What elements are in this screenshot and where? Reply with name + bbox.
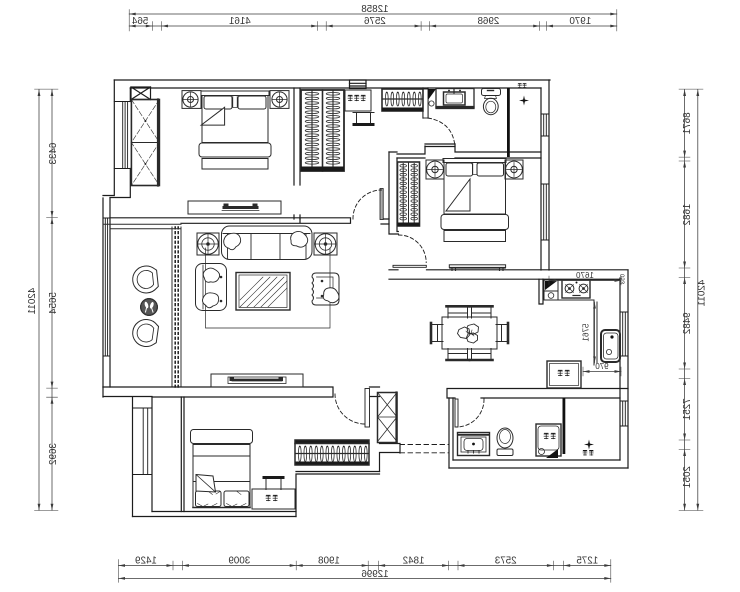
- svg-text:564: 564: [131, 16, 148, 27]
- svg-text:9482: 9482: [682, 312, 693, 334]
- svg-text:3692: 3692: [48, 443, 59, 465]
- svg-text:1970: 1970: [569, 16, 591, 27]
- svg-text:5761: 5761: [582, 324, 591, 342]
- svg-text:1842: 1842: [403, 555, 425, 566]
- svg-text:12996: 12996: [361, 569, 389, 580]
- svg-text:1682: 1682: [682, 204, 693, 226]
- svg-text:970: 970: [595, 362, 609, 371]
- svg-text:2576: 2576: [363, 16, 385, 27]
- svg-text:5654: 5654: [48, 292, 59, 314]
- svg-text:3009: 3009: [228, 555, 250, 566]
- svg-text:42011: 42011: [696, 280, 707, 307]
- svg-text:1670: 1670: [576, 271, 594, 280]
- svg-text:6433: 6433: [48, 143, 59, 165]
- svg-text:42011: 42011: [27, 288, 38, 315]
- svg-text:8671: 8671: [682, 112, 693, 134]
- svg-text:1275: 1275: [576, 555, 598, 566]
- svg-text:2968: 2968: [477, 16, 499, 27]
- svg-text:2051: 2051: [682, 466, 693, 488]
- svg-text:1429: 1429: [135, 555, 157, 566]
- svg-text:7251: 7251: [682, 398, 693, 420]
- svg-text:053: 053: [621, 274, 627, 285]
- svg-text:2573: 2573: [494, 555, 516, 566]
- svg-text:1908: 1908: [318, 555, 340, 566]
- svg-text:12858: 12858: [361, 4, 389, 15]
- svg-text:4161: 4161: [229, 16, 251, 27]
